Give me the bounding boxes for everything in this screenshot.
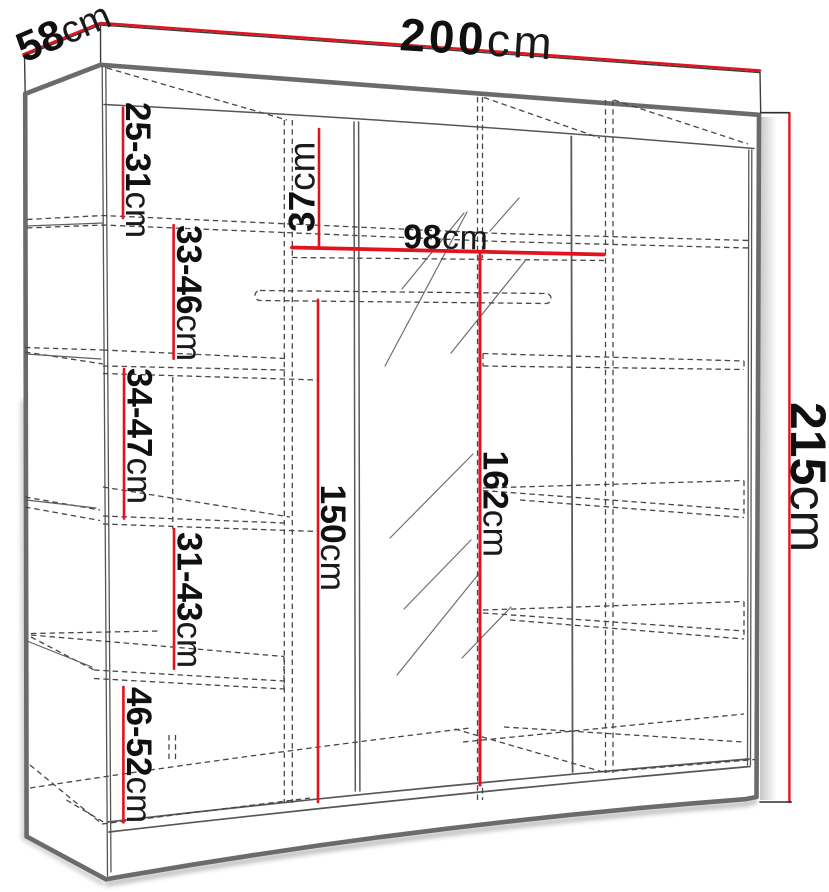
svg-text:37cm: 37cm [282, 142, 323, 232]
svg-text:150cm: 150cm [313, 485, 353, 592]
svg-text:34-47cm: 34-47cm [120, 368, 159, 504]
svg-text:200cm: 200cm [398, 8, 556, 69]
svg-text:25-31cm: 25-31cm [118, 102, 157, 238]
svg-text:98cm: 98cm [403, 218, 489, 257]
svg-text:215cm: 215cm [780, 402, 829, 552]
svg-text:46-52cm: 46-52cm [119, 687, 158, 823]
svg-text:31-43cm: 31-43cm [170, 532, 209, 668]
svg-text:33-46cm: 33-46cm [169, 225, 208, 361]
svg-text:162cm: 162cm [476, 451, 516, 558]
